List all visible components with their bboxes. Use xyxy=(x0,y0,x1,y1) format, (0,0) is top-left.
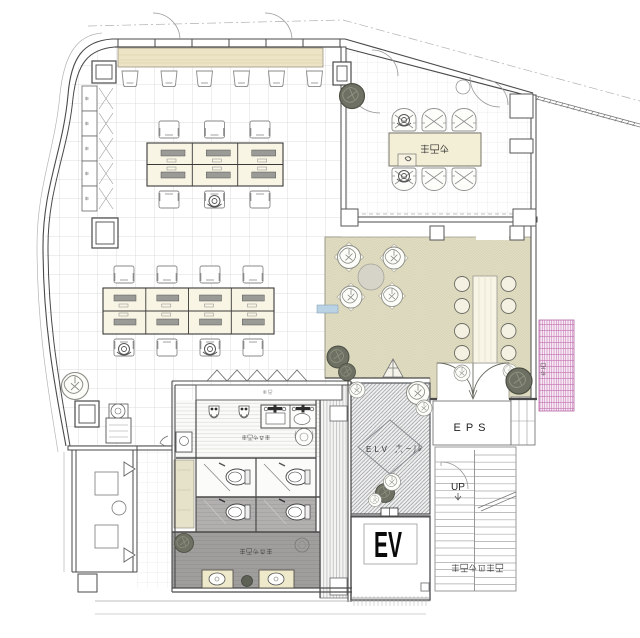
svg-text:EPS: EPS xyxy=(453,422,490,434)
svg-text:EV: EV xyxy=(374,524,402,565)
svg-text:ELV: ELV xyxy=(366,445,390,454)
svg-text:UP: UP xyxy=(451,482,465,493)
